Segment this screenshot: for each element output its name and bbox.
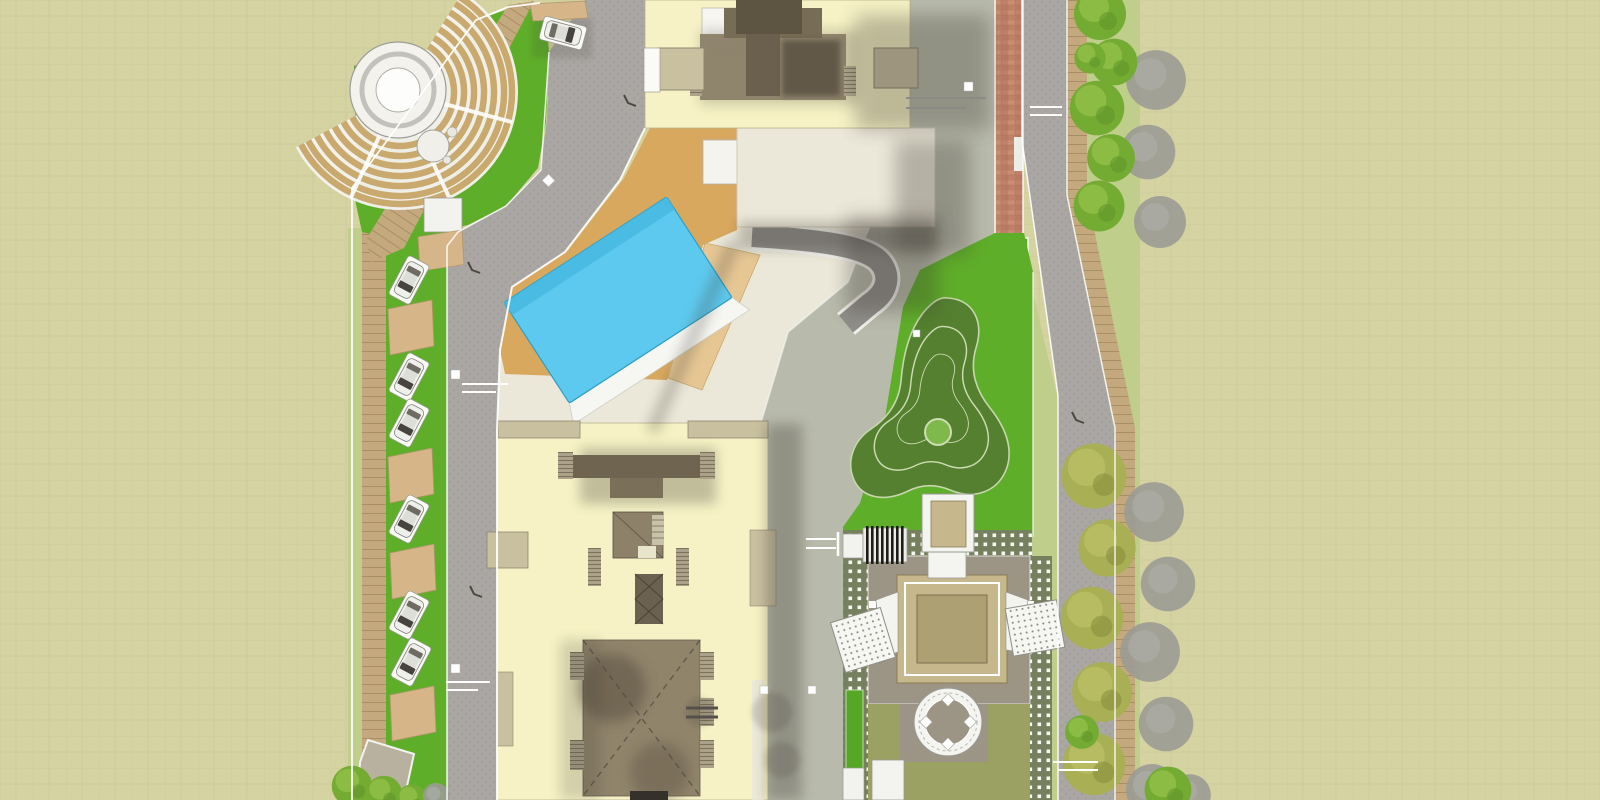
tower1-balcony-right <box>874 48 918 88</box>
seating-circle <box>914 688 982 756</box>
amphitheater-steps <box>424 198 462 232</box>
plaza-walk <box>872 760 904 800</box>
podium-block <box>737 128 935 227</box>
tower2-entry-left <box>487 532 528 568</box>
tower1-balcony-left <box>658 48 704 90</box>
tower-1 <box>644 0 918 128</box>
red-brick-path <box>995 0 1023 246</box>
small-pavilion <box>922 494 974 578</box>
tower-2 <box>487 421 776 800</box>
band-steps <box>843 768 864 800</box>
site-plan-rendering <box>0 0 1600 800</box>
mound-center-circle <box>925 419 951 445</box>
site-plan-canvas <box>0 0 1600 800</box>
